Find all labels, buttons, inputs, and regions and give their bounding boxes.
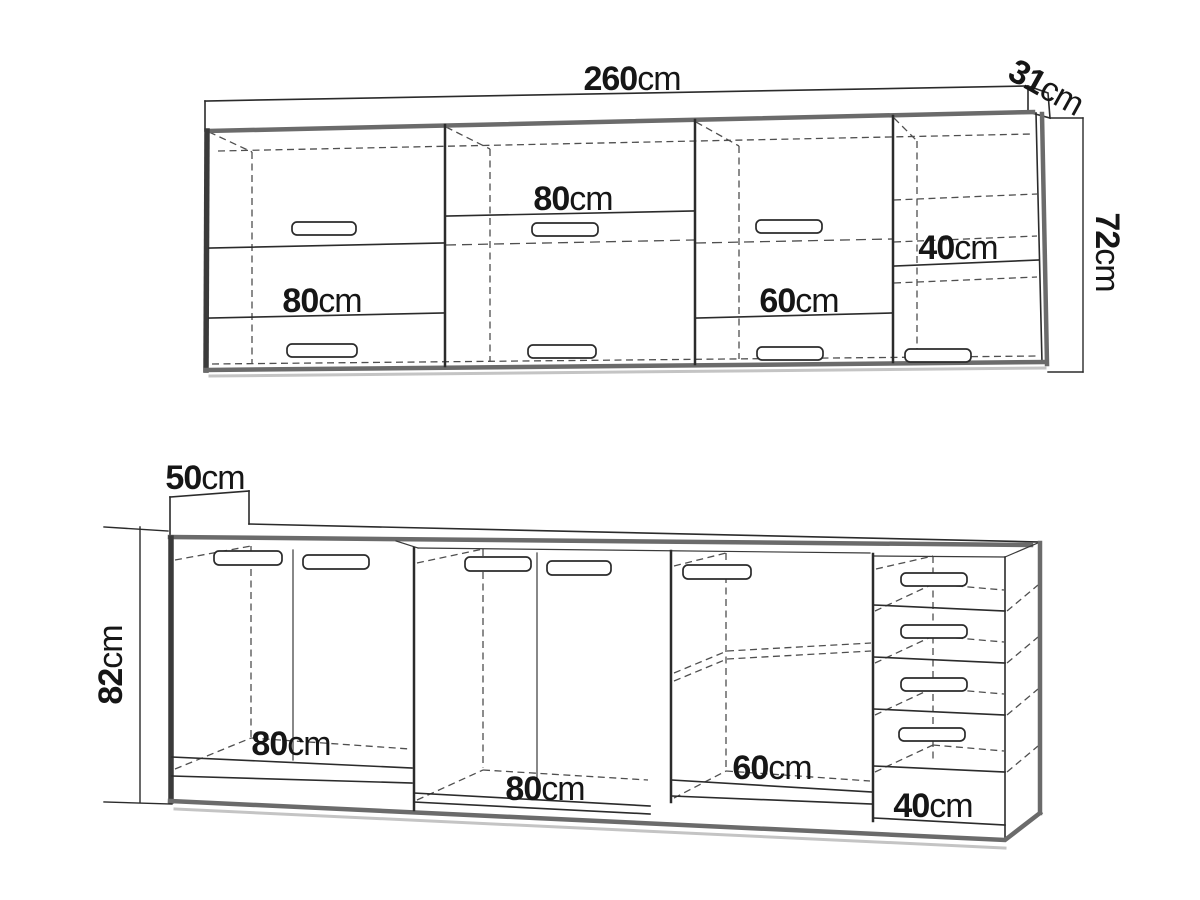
door-handle [756,220,822,233]
drawer-handle [899,728,965,741]
door-handle [532,223,598,236]
door-handle [214,551,282,565]
wall-section-3-width-label: 60cm [759,282,838,320]
base-section-2-width-label: 80cm [505,770,584,808]
wall-section-4-width-label: 40cm [918,229,997,267]
wall-section-1-width-label: 80cm [282,282,361,320]
base-cabinet-drawing: 50cm 82cm 80cm 80cm 60cm 40cm [92,459,1040,848]
door-handle [292,222,356,235]
drawer-handle [901,573,967,586]
drawer-handle [901,625,967,638]
drawer-handle [901,678,967,691]
base-height-label: 82cm [92,625,130,704]
door-handle [757,347,823,360]
base-depth-label: 50cm [165,459,244,497]
door-handle [547,561,611,575]
wall-section-2-width-label: 80cm [533,180,612,218]
base-section-4-width-label: 40cm [893,787,972,825]
base-section-1-width-label: 80cm [251,725,330,763]
wall-cabinet-drawing: 260cm 31cm 72cm 80cm 80cm 60cm 40cm [205,52,1126,376]
wall-width-label: 260cm [583,60,680,98]
door-handle [465,557,531,571]
wall-height-dimension [1048,118,1083,372]
door-handle [905,349,971,362]
door-handle [528,345,596,358]
base-cabinet-front-face [170,537,1005,840]
door-handle [287,344,357,357]
door-handle [303,555,369,569]
wall-height-label: 72cm [1088,212,1126,291]
diagram-canvas: 260cm 31cm 72cm 80cm 80cm 60cm 40cm [0,0,1200,900]
door-handle [683,565,751,579]
base-section-3-width-label: 60cm [732,749,811,787]
wall-cabinet-left-edge [206,131,207,370]
cabinet-dimension-diagram: 260cm 31cm 72cm 80cm 80cm 60cm 40cm [0,0,1200,900]
